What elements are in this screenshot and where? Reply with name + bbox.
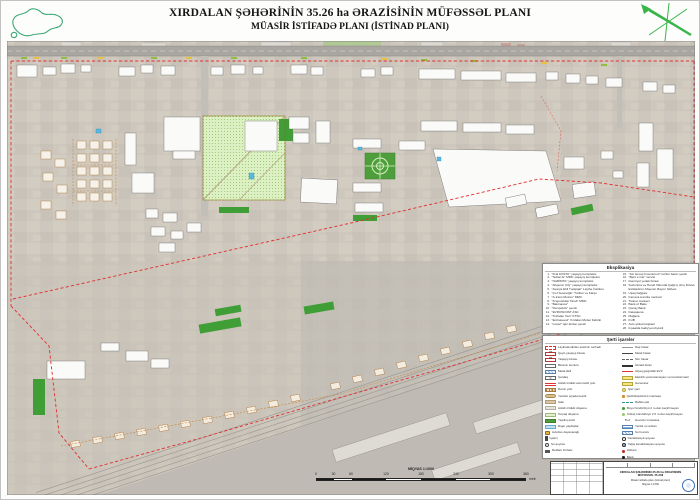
num28-symbol: 28 <box>545 358 556 362</box>
circlek-symbol <box>622 437 626 441</box>
approval-stamp <box>682 479 695 492</box>
board-symbol <box>545 450 550 453</box>
bluehatch2-symbol <box>622 425 633 429</box>
yellowbox-symbol <box>622 376 633 380</box>
title-block-main: XIRDALAN ŞƏHƏRİNİN 35.26 ha ƏRAZİSİNİN M… <box>604 462 697 494</box>
circley-symbol <box>622 443 626 447</box>
linered-symbol <box>622 371 633 372</box>
explication-legend: Eksplikasiya 1."Kral KOSTA" yaşayış komp… <box>542 263 699 334</box>
signs-column-left: Layihələndirilən ərazinin sərhədi27Qeyri… <box>545 345 619 467</box>
yellowcircle-symbol <box>622 388 626 392</box>
conventional-signs-legend: Şərti işarələr Layihələndirilən ərazinin… <box>542 335 699 459</box>
shrub-symbol <box>622 413 625 416</box>
explication-column-left: 1."Kral KOSTA" yaşayış kompleksi2."Sulta… <box>545 273 619 331</box>
scale-bar: MİQYAS 1:1000 03060120180240300360 metr <box>316 467 546 489</box>
linegrey-symbol <box>622 347 633 348</box>
title-block-cells <box>606 463 695 468</box>
scale-segment <box>490 479 525 480</box>
title-block-project-line2: MÜFƏSSƏL PLANI <box>606 474 695 477</box>
light-symbol <box>545 436 548 441</box>
bus-symbol <box>545 431 550 435</box>
title-block-subtitle: Müasir istifadə planı (istinad planı) <box>606 479 695 482</box>
linedark-symbol <box>622 353 633 354</box>
green-symbol <box>545 419 556 423</box>
scale-tick: 120 <box>383 472 389 476</box>
yellowbox2-symbol <box>622 382 633 386</box>
scale-tick: 300 <box>488 472 494 476</box>
well-symbol <box>545 443 549 447</box>
tree-symbol <box>622 407 625 410</box>
bluehatch-symbol <box>622 431 633 435</box>
scale-tick: 240 <box>453 472 459 476</box>
explication-column-right: 15."AG Group İnvestment" körfəz balon şə… <box>622 273 696 331</box>
bluehatch-symbol <box>545 370 556 374</box>
boundary-symbol <box>545 346 556 350</box>
rail-symbol <box>545 388 556 392</box>
scale-segment <box>421 479 456 480</box>
explication-item: 28.İnşaatda fəaliyyət obyekti <box>622 327 696 331</box>
bluebox-symbol <box>545 425 556 429</box>
legend-sign-item: Reklam lövhəsi <box>545 448 619 454</box>
title-block-revision-grid <box>551 462 604 494</box>
cross-symbol <box>545 376 556 380</box>
redlines-symbol <box>545 382 556 386</box>
plan-sheet: XIRDALAN ŞƏHƏRİNİN 35.26 ha ƏRAZİSİNİN M… <box>0 0 700 500</box>
scale-label: MİQYAS 1:1000 <box>316 467 526 471</box>
scale-segment <box>334 479 351 480</box>
hydrant-symbol <box>622 450 625 453</box>
scale-ticks: 03060120180240300360 <box>316 472 526 477</box>
tan-symbol <box>545 400 556 404</box>
scale-segment <box>317 479 334 480</box>
linethick-symbol <box>622 365 633 367</box>
title-block: XIRDALAN ŞƏHƏRİNİN 35.26 ha ƏRAZİSİNİN M… <box>550 461 698 495</box>
scale-bar-segments <box>316 478 526 481</box>
scale-tick: 60 <box>349 472 353 476</box>
num27-symbol: 27 <box>545 352 556 356</box>
signs-column-right: Daş hasarMetal hasarSim hasarİstinad div… <box>622 345 696 467</box>
tla-symbol: TLA <box>622 419 633 423</box>
scale-unit: metr <box>529 477 536 481</box>
linedash-symbol <box>622 359 633 360</box>
scale-tick: 360 <box>523 472 529 476</box>
beige-symbol <box>545 406 556 410</box>
scale-segment <box>352 479 387 480</box>
signs-title: Şərti işarələr <box>545 337 696 344</box>
scale-segment <box>386 479 421 480</box>
scale-tick: 0 <box>315 472 317 476</box>
scale-tick: 180 <box>418 472 424 476</box>
diamond-symbol <box>545 394 556 398</box>
scale-segment <box>456 479 491 480</box>
explication-item: 14."Lostel" qaz-lövbər şəxsli <box>545 323 619 327</box>
dotblack-symbol <box>622 456 625 459</box>
explication-title: Eksplikasiya <box>545 265 696 272</box>
lightgreen-symbol <box>545 413 556 417</box>
scale-tick: 30 <box>332 472 336 476</box>
dotorange-symbol <box>622 395 625 398</box>
whitebox-symbol <box>545 364 556 368</box>
commline-symbol <box>622 402 633 403</box>
